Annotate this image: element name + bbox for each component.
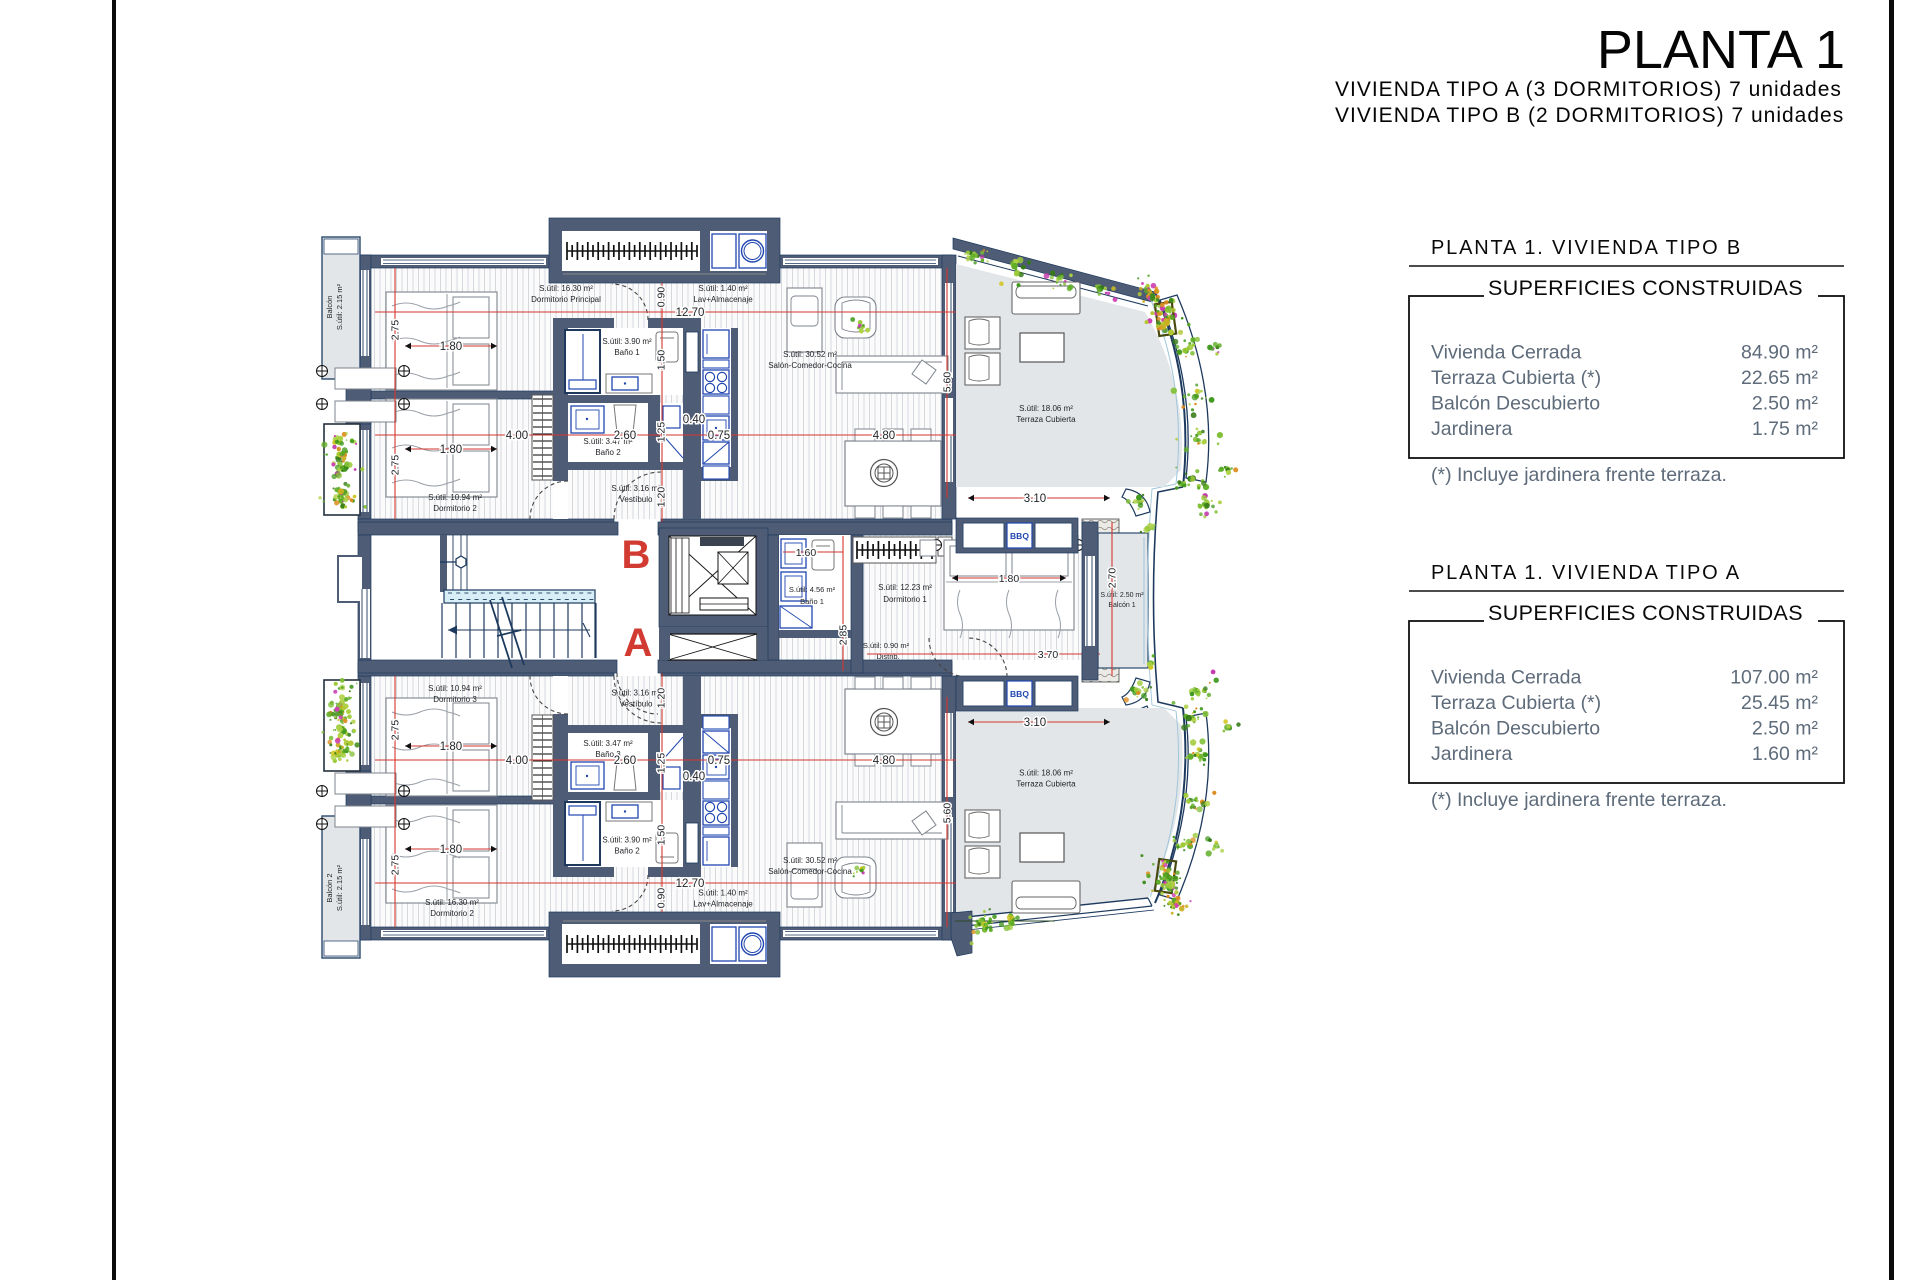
svg-text:S.útil: 2.15 m²: S.útil: 2.15 m²: [335, 864, 344, 911]
svg-text:4.80: 4.80: [873, 430, 895, 442]
svg-text:S.útil: 3.16 m²: S.útil: 3.16 m²: [611, 689, 661, 698]
svg-text:PLANTA 1. VIVIENDA TIPO A: PLANTA 1. VIVIENDA TIPO A: [1431, 562, 1741, 584]
svg-text:0.40: 0.40: [683, 414, 705, 426]
svg-text:VIVIENDA TIPO A (3 DORMITORIOS: VIVIENDA TIPO A (3 DORMITORIOS) 7 unidad…: [1335, 78, 1842, 101]
svg-text:0.90: 0.90: [656, 287, 668, 308]
svg-text:S.útil: 3.90 m²: S.útil: 3.90 m²: [602, 337, 652, 346]
svg-text:Jardinera: Jardinera: [1431, 743, 1512, 765]
svg-text:Lav+Almacenaje: Lav+Almacenaje: [693, 900, 753, 909]
svg-text:1.20: 1.20: [656, 688, 668, 709]
svg-text:S.útil: 16.30 m²: S.útil: 16.30 m²: [425, 898, 479, 907]
svg-text:Balcón Descubierto: Balcón Descubierto: [1431, 393, 1600, 415]
svg-text:(*) Incluye jardinera frente t: (*) Incluye jardinera frente terraza.: [1431, 464, 1727, 486]
svg-text:Vivienda Cerrada: Vivienda Cerrada: [1431, 342, 1581, 364]
svg-text:12.70: 12.70: [676, 878, 705, 890]
svg-text:4.00: 4.00: [506, 755, 528, 767]
svg-text:Vestíbulo: Vestíbulo: [620, 700, 653, 709]
svg-text:SUPERFICIES CONSTRUIDAS: SUPERFICIES CONSTRUIDAS: [1488, 601, 1803, 625]
svg-text:25.45 m²: 25.45 m²: [1741, 692, 1818, 714]
svg-text:Balcón: Balcón: [325, 296, 334, 319]
svg-text:S.útil: 30.52 m²: S.útil: 30.52 m²: [783, 350, 837, 359]
svg-text:1.50: 1.50: [656, 825, 668, 846]
svg-text:S.útil: 1.40 m²: S.útil: 1.40 m²: [698, 889, 748, 898]
svg-text:1.75 m²: 1.75 m²: [1752, 418, 1819, 440]
svg-text:PLANTA 1: PLANTA 1: [1597, 20, 1845, 80]
svg-text:Terraza Cubierta (*): Terraza Cubierta (*): [1431, 367, 1601, 389]
svg-text:2.85: 2.85: [838, 625, 850, 646]
svg-text:Dormitorio 2: Dormitorio 2: [430, 909, 474, 918]
svg-text:Dormitorio 3: Dormitorio 3: [433, 695, 477, 704]
svg-text:S.útil: 10.94 m²: S.útil: 10.94 m²: [428, 493, 482, 502]
svg-text:1.80: 1.80: [440, 444, 462, 456]
svg-text:S.útil: 0.90 m²: S.útil: 0.90 m²: [863, 641, 910, 650]
svg-text:1.50: 1.50: [656, 350, 668, 371]
svg-text:Vivienda Cerrada: Vivienda Cerrada: [1431, 667, 1581, 689]
svg-text:2.50 m²: 2.50 m²: [1752, 393, 1819, 415]
svg-text:1.60: 1.60: [796, 547, 817, 559]
svg-text:S.útil: 2.50 m²: S.útil: 2.50 m²: [1100, 592, 1144, 599]
svg-text:PLANTA 1. VIVIENDA TIPO B: PLANTA 1. VIVIENDA TIPO B: [1431, 237, 1742, 259]
svg-text:(*) Incluye jardinera frente t: (*) Incluye jardinera frente terraza.: [1431, 789, 1727, 811]
svg-text:BBQ: BBQ: [1010, 689, 1029, 699]
svg-text:S.útil: 2.15 m²: S.útil: 2.15 m²: [335, 283, 344, 330]
svg-text:4.00: 4.00: [506, 430, 528, 442]
svg-text:B: B: [622, 533, 651, 577]
svg-text:S.útil: 10.94 m²: S.útil: 10.94 m²: [428, 684, 482, 693]
svg-text:2.75: 2.75: [390, 855, 402, 876]
svg-text:S.útil: 18.06 m²: S.útil: 18.06 m²: [1019, 404, 1073, 413]
svg-text:1.25: 1.25: [656, 422, 668, 443]
svg-text:Baño 2: Baño 2: [614, 847, 640, 856]
svg-text:Dormitorio Principal: Dormitorio Principal: [531, 295, 601, 304]
svg-text:S.útil: 4.56 m²: S.útil: 4.56 m²: [789, 585, 836, 594]
svg-text:Vestíbulo: Vestíbulo: [620, 495, 653, 504]
svg-text:1.80: 1.80: [440, 741, 462, 753]
svg-text:2.50 m²: 2.50 m²: [1752, 718, 1819, 740]
svg-text:S.útil: 30.52 m²: S.útil: 30.52 m²: [783, 856, 837, 865]
svg-text:Distrib.: Distrib.: [876, 652, 899, 661]
svg-text:0.90: 0.90: [656, 888, 668, 909]
svg-text:2.60: 2.60: [614, 755, 636, 767]
svg-text:107.00 m²: 107.00 m²: [1730, 667, 1818, 689]
svg-text:84.90 m²: 84.90 m²: [1741, 342, 1818, 364]
svg-text:BBQ: BBQ: [1010, 531, 1029, 541]
svg-text:S.útil: 12.23 m²: S.útil: 12.23 m²: [878, 583, 932, 592]
svg-text:1.60 m²: 1.60 m²: [1752, 743, 1819, 765]
svg-text:S.útil: 18.06 m²: S.útil: 18.06 m²: [1019, 769, 1073, 778]
svg-text:3.10: 3.10: [1024, 717, 1046, 729]
svg-text:Terraza Cubierta: Terraza Cubierta: [1016, 415, 1076, 424]
svg-text:S.útil: 3.90 m²: S.útil: 3.90 m²: [602, 836, 652, 845]
svg-text:Salón-Comedor-Cocina: Salón-Comedor-Cocina: [768, 361, 852, 370]
svg-text:2.75: 2.75: [390, 720, 402, 741]
svg-text:VIVIENDA TIPO B (2 DORMITORIOS: VIVIENDA TIPO B (2 DORMITORIOS) 7 unidad…: [1335, 104, 1844, 127]
svg-text:1.80: 1.80: [440, 844, 462, 856]
svg-text:Baño 2: Baño 2: [595, 448, 621, 457]
svg-text:22.65 m²: 22.65 m²: [1741, 367, 1818, 389]
svg-text:0.40: 0.40: [683, 771, 705, 783]
svg-text:S.útil: 3.47 m²: S.útil: 3.47 m²: [583, 739, 633, 748]
svg-text:2.70: 2.70: [1107, 568, 1119, 589]
svg-text:Terraza Cubierta: Terraza Cubierta: [1016, 780, 1076, 789]
svg-text:12.70: 12.70: [676, 307, 705, 319]
svg-text:4.80: 4.80: [873, 755, 895, 767]
svg-text:1.20: 1.20: [656, 487, 668, 508]
svg-text:1.80: 1.80: [999, 573, 1020, 585]
svg-text:0.75: 0.75: [708, 430, 730, 442]
svg-text:Salón-Comedor-Cocina: Salón-Comedor-Cocina: [768, 867, 852, 876]
svg-text:Baño 1: Baño 1: [800, 597, 824, 606]
svg-text:2.75: 2.75: [390, 455, 402, 476]
svg-text:2.60: 2.60: [614, 430, 636, 442]
svg-text:Dormitorio 2: Dormitorio 2: [433, 504, 477, 513]
svg-text:Jardinera: Jardinera: [1431, 418, 1512, 440]
svg-text:1.25: 1.25: [656, 753, 668, 774]
svg-text:S.útil: 1.40 m²: S.útil: 1.40 m²: [698, 284, 748, 293]
svg-text:2.75: 2.75: [390, 320, 402, 341]
svg-text:SUPERFICIES CONSTRUIDAS: SUPERFICIES CONSTRUIDAS: [1488, 276, 1803, 300]
svg-text:S.útil: 16.30 m²: S.útil: 16.30 m²: [539, 284, 593, 293]
svg-text:3.10: 3.10: [1024, 493, 1046, 505]
svg-text:Balcón 2: Balcón 2: [325, 873, 334, 902]
svg-text:Dormitorio 1: Dormitorio 1: [883, 595, 927, 604]
svg-text:1.80: 1.80: [440, 341, 462, 353]
svg-text:5.60: 5.60: [942, 803, 954, 824]
svg-text:Balcón Descubierto: Balcón Descubierto: [1431, 718, 1600, 740]
svg-text:Baño 1: Baño 1: [614, 348, 640, 357]
svg-text:5.60: 5.60: [942, 372, 954, 393]
svg-text:Terraza Cubierta (*): Terraza Cubierta (*): [1431, 692, 1601, 714]
svg-text:3.70: 3.70: [1038, 649, 1059, 661]
svg-text:S.útil: 3.16 m²: S.útil: 3.16 m²: [611, 484, 661, 493]
svg-text:Lav+Almacenaje: Lav+Almacenaje: [693, 295, 753, 304]
svg-text:A: A: [624, 621, 653, 665]
svg-text:0.75: 0.75: [708, 755, 730, 767]
